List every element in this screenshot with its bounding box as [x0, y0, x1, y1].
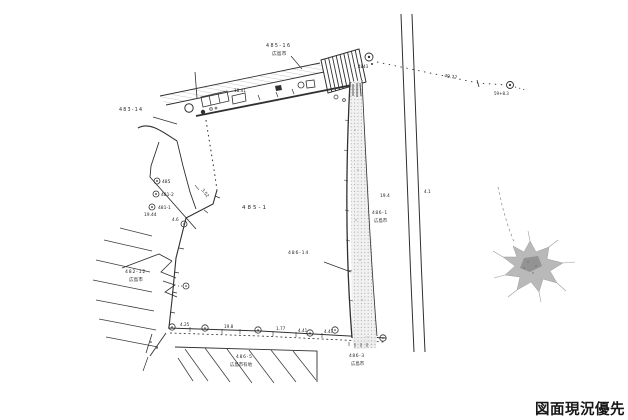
bottom-dist-5: 4.47 — [324, 329, 334, 334]
bottom-dist-2: 19.8 — [224, 324, 234, 329]
faint-numbers: 19.4 4.1 — [380, 189, 431, 199]
small-circle-marker — [298, 82, 304, 88]
edge-measure-label: 4.6 — [172, 217, 179, 222]
scanned-cadastral-plan: 18.41 4.6 — [0, 0, 628, 420]
faint-number-2: 4.1 — [424, 189, 431, 194]
bottom-dist-1: 4.25 — [180, 322, 190, 327]
slant-measure-label: 3.52 — [199, 188, 210, 200]
filled-circle-marker — [201, 110, 205, 114]
bottom-dist-3: 1.77 — [276, 326, 286, 331]
priority-stamp-text: 図面現況優先 — [535, 398, 625, 419]
lot-bottom-owner: 広島市有地 — [230, 361, 253, 368]
lot-strip-bottom-number: 486-3 — [349, 353, 365, 359]
cluster-point-3: 481-1 — [158, 205, 171, 211]
star-blob — [493, 187, 575, 302]
top-road — [160, 63, 324, 105]
survey-point-cluster: 485 481-2 481-1 3.52 19.44 — [144, 178, 210, 218]
lot-center-number: 485-1 — [242, 205, 268, 211]
lot-left-number: 483-14 — [119, 107, 143, 113]
lot-strip-bottom-owner: 広島市 — [351, 360, 365, 367]
faint-number-1: 19.4 — [380, 193, 390, 199]
bottom-hatched-parcel: 486-5 広島市有地 — [175, 347, 317, 383]
lot-strip-top-number: 486-1 — [372, 210, 388, 216]
lot-top-number: 485-16 — [266, 43, 291, 49]
control-point-end-label: 59+8.3 — [494, 91, 509, 96]
parcel-left-boundary: 4.6 — [122, 120, 220, 327]
open-circle-marker — [185, 104, 193, 112]
bottom-dist-4: 4.41 — [298, 328, 308, 333]
corner-tail-lines — [143, 333, 166, 371]
buildings-row: 18.41 — [185, 80, 355, 114]
lot-strip-top-owner: 広島市 — [374, 217, 388, 224]
left-measure-label: 19.44 — [144, 212, 157, 218]
lot-lower-left-owner: 広島市 — [129, 276, 143, 283]
control-traverse: 4843 49.77 59+8.3 — [358, 53, 526, 96]
lot-top-owner: 広島市 — [272, 50, 287, 57]
control-point-start-label: 4843 — [358, 64, 369, 69]
cluster-point-1: 485 — [162, 179, 171, 185]
small-filled-square — [275, 85, 282, 91]
cluster-point-2: 481-2 — [161, 192, 174, 198]
traverse-distance-label: 49.77 — [444, 73, 458, 81]
site-plan-svg: 18.41 4.6 — [0, 0, 628, 420]
building-measure-label: 18.41 — [234, 88, 246, 93]
lot-strip-number: 486-14 — [288, 250, 309, 256]
right-road — [401, 14, 425, 352]
lot-bottom-number: 486-5 — [236, 354, 253, 360]
lot-lower-left-number: 482-12 — [125, 269, 146, 275]
left-slope-hatch — [93, 228, 158, 347]
